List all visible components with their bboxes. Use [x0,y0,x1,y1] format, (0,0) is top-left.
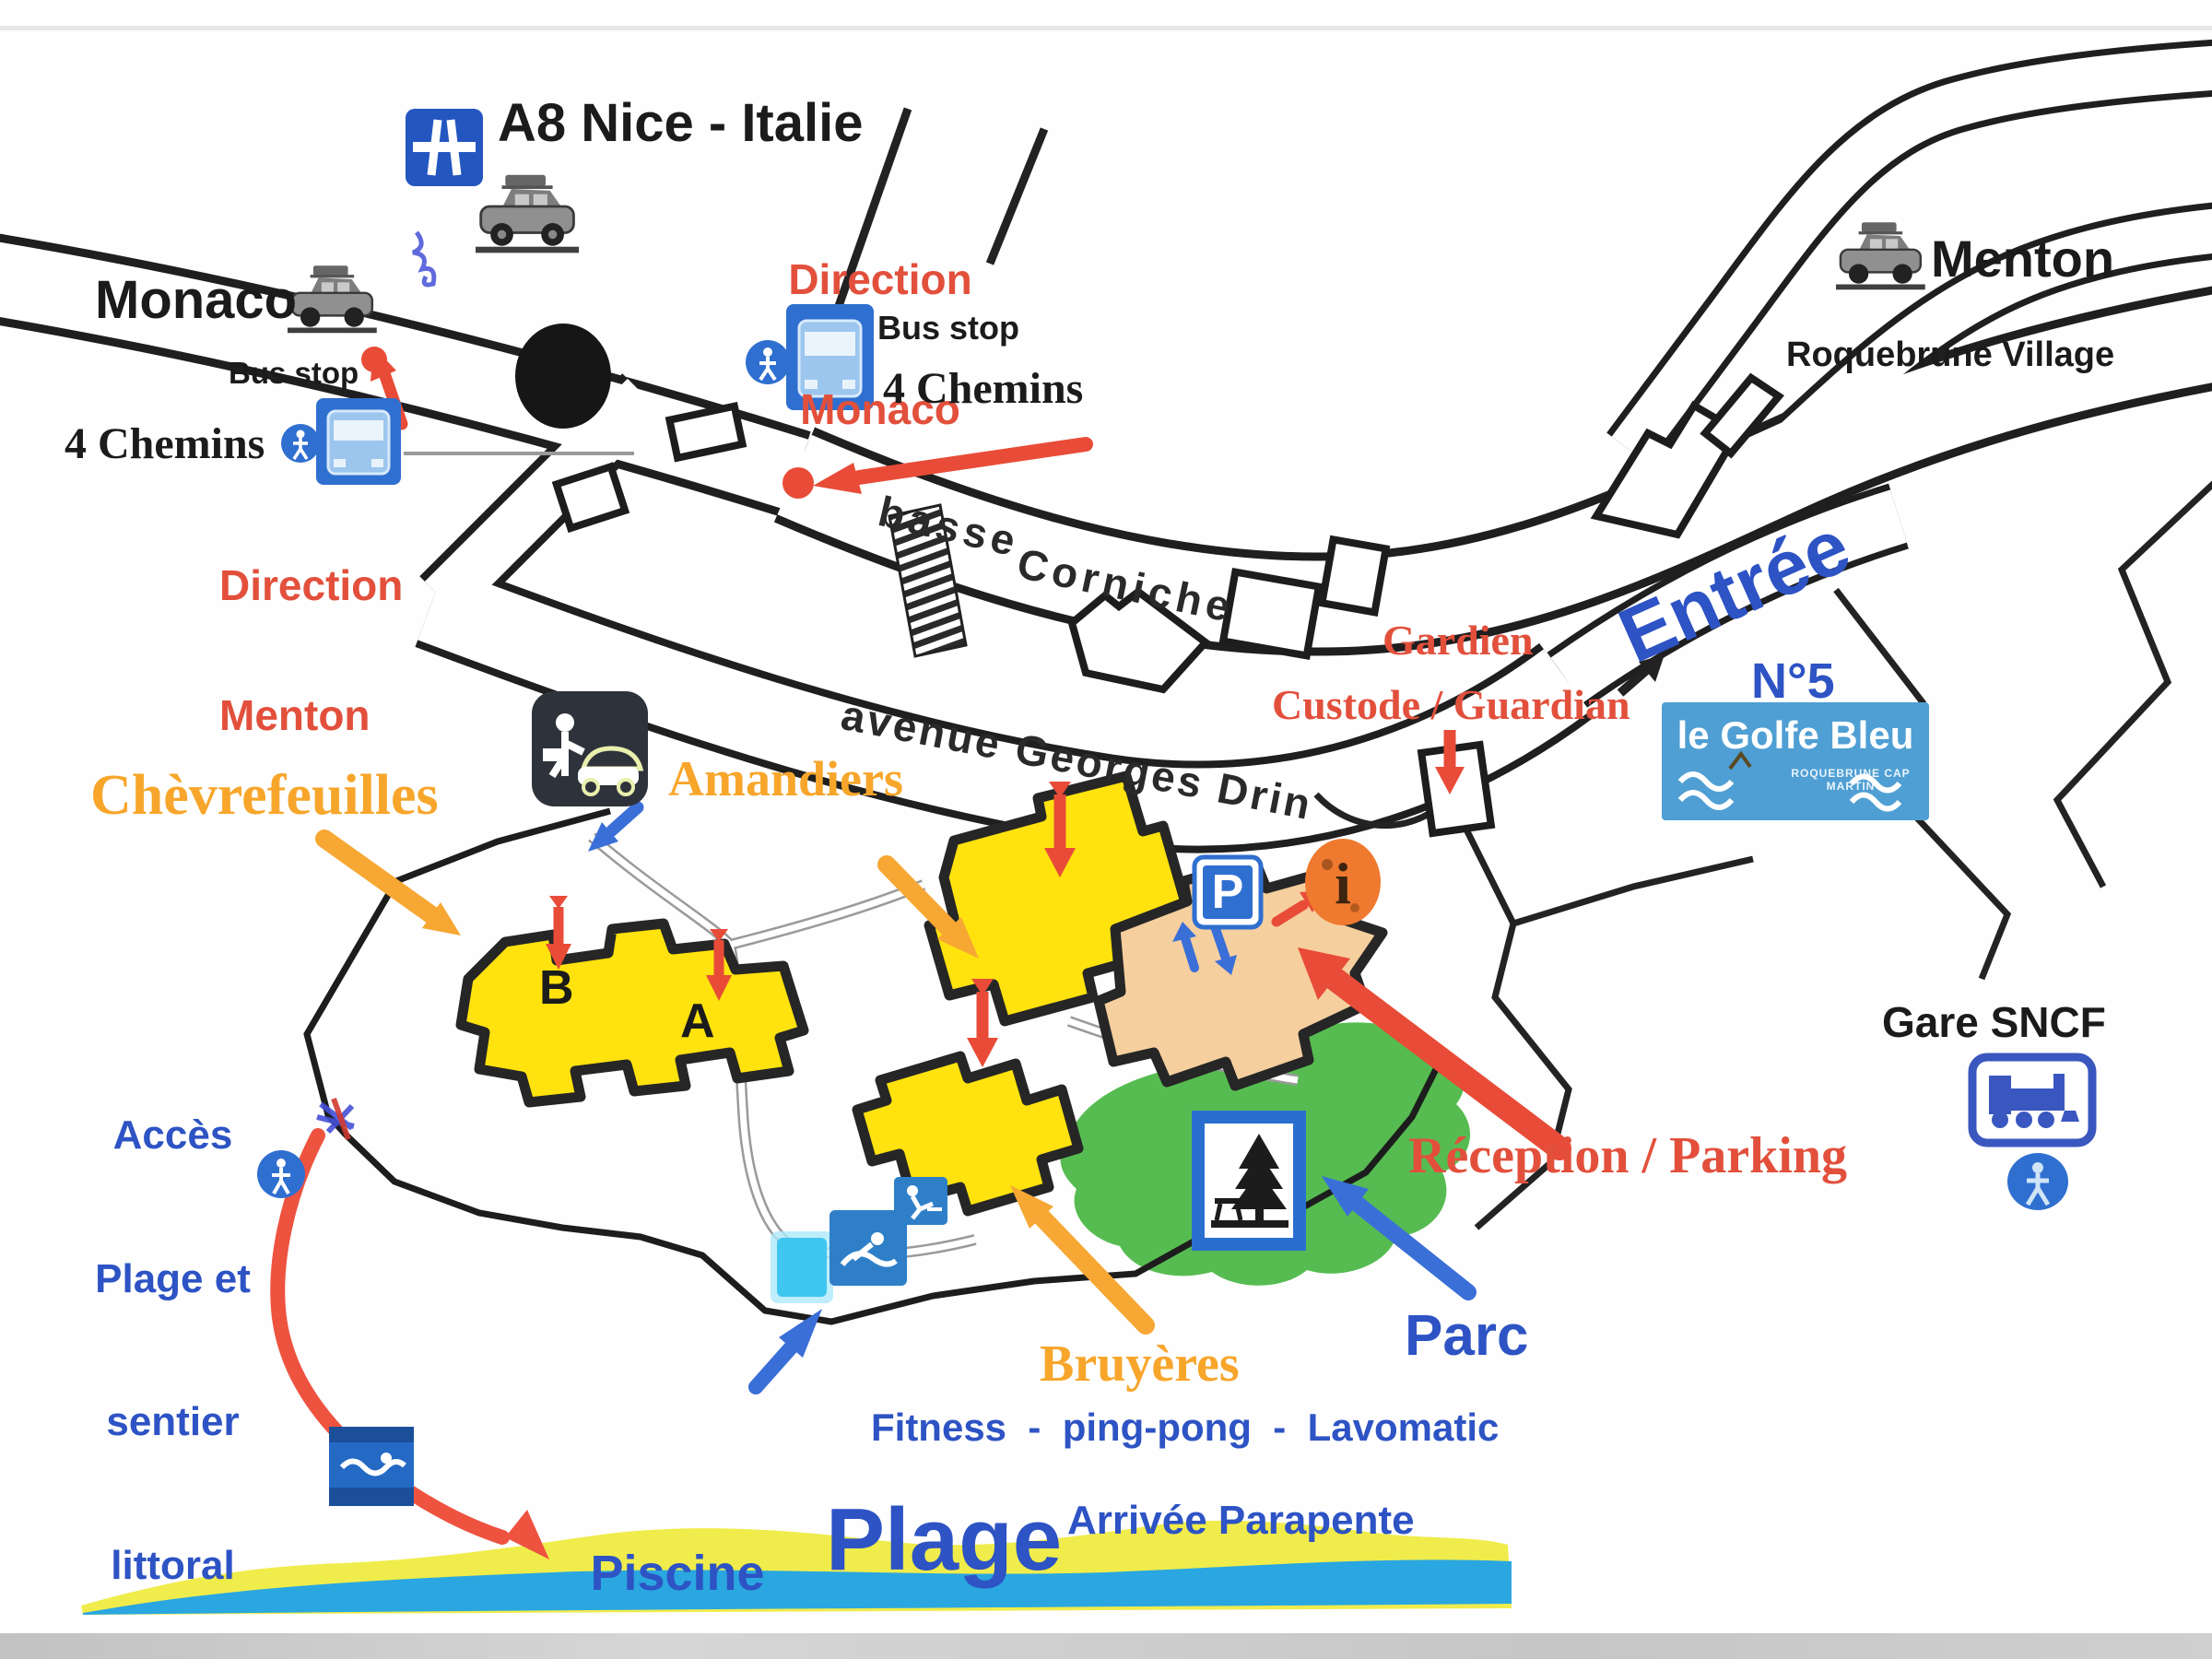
scan-artifact-bottom [0,1633,2212,1659]
building-letter-b: B [539,964,574,1013]
bus-sign-left [316,398,401,485]
plage-label: Plage [826,1495,1062,1585]
gare-label: Gare SNCF [1882,1001,2106,1044]
info-letter: i [1305,841,1381,927]
acces-line4: littoral [88,1542,258,1590]
motorway-icon [406,109,483,186]
reception-label: Réception / Parking [1408,1130,1847,1182]
chevrefeuilles-label: Chèvrefeuilles [90,767,439,825]
fitness-label: Fitness - ping-pong - Lavomatic [871,1408,1499,1448]
car-icon-a8 [476,175,579,253]
gardien-label: Gardien [1382,619,1534,663]
pedestrian-icon-acces [257,1150,305,1198]
piscine-line1: Piscine [544,1545,811,1602]
piscine-arrow [756,1309,822,1387]
direction-monaco-line1: Direction [774,258,986,301]
car-icon-menton [1836,222,1925,289]
golfe-bleu-logo: le Golfe Bleu ROQUEBRUNE CAP MARTIN [1662,702,1929,820]
acces-plage-label: Accès Plage et sentier littoral [88,1016,258,1638]
busstop-left-label: Bus stop [229,358,359,389]
golfe-bleu-waves [1662,702,1929,820]
roundabout [515,324,611,429]
menton-label: Menton [1931,232,2114,285]
direction-menton-line2: Menton [219,694,403,737]
amandiers-label: Amandiers [668,754,903,805]
park-sign [1198,1117,1300,1244]
dropoff-icon [532,691,648,806]
monaco-label: Monaco [95,273,297,327]
acces-line3: sentier [88,1398,258,1446]
roquebrune-label: Roquebrune Village [1786,337,2114,373]
pool-icons [771,1177,947,1303]
chevrefeuilles-arrow [324,839,461,935]
building-b-a [461,924,804,1102]
swim-sign [329,1427,414,1506]
pedestrian-icon-gare [2001,1149,2077,1214]
acces-line2: Plage et [88,1255,258,1303]
scan-artifact-top [0,26,2212,30]
a8-label: A8 Nice - Italie [498,96,863,150]
pedestrian-icon-left [281,424,320,463]
piscine-label: Piscine Ping-pong [544,1430,811,1659]
busstop-left-dot [361,347,387,372]
building-bruyeres [857,1056,1078,1211]
busstop-top-label: Bus stop [877,312,1019,346]
direction-menton-label: Direction Menton [219,477,403,780]
train-sign [1972,1057,2092,1143]
bruyeres-label: Bruyères [1040,1338,1240,1391]
parking-letter: P [1194,857,1261,927]
acces-line1: Accès [88,1112,258,1159]
parapente-label: Arrivée Parapente [1067,1500,1415,1542]
chemins-left-label: 4 Chemins [65,422,265,467]
parc-label: Parc [1405,1307,1528,1365]
map-canvas: A8 Nice - Italie Monaco Menton Roquebrun… [0,0,2212,1659]
direction-menton-line1: Direction [219,564,403,607]
chemins-top-label: 4 Chemins [883,367,1083,412]
custode-label: Custode / Guardian [1272,684,1630,727]
building-letter-a: A [680,997,715,1046]
entree-numero-label: N°5 [1751,656,1835,707]
